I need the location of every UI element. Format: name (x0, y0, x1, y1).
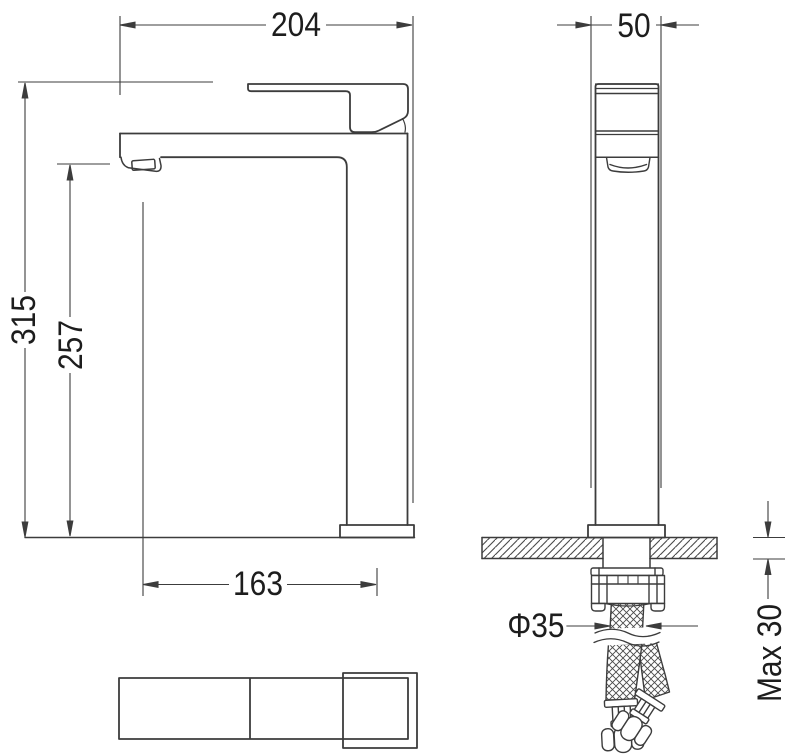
handle-top-outline (343, 673, 417, 748)
supply-hoses (594, 600, 670, 700)
drawing-geometry (0, 0, 800, 756)
body-side (596, 84, 659, 525)
dim-overall-width (120, 16, 413, 503)
hose-left-upper (610, 600, 644, 630)
side-view (482, 84, 717, 754)
handle-front (248, 84, 408, 132)
dim-hole-diameter-label: Φ35 (506, 609, 567, 643)
dim-overall-height-label: 315 (7, 293, 41, 346)
body-front (120, 134, 408, 526)
dim-spout-height-label: 257 (54, 318, 88, 371)
spout-aerator-front (121, 157, 161, 171)
dim-overall-width-label: 204 (269, 8, 322, 42)
dim-body-depth (557, 16, 699, 488)
mounting-nut (592, 576, 665, 612)
top-view (119, 673, 417, 748)
faucet-dimension-drawing: 204 50 315 257 163 Φ35 Max 30 (0, 0, 800, 756)
dim-max-thickness-label: Max 30 (753, 602, 787, 704)
dim-overall-height (18, 82, 213, 537)
base-flange-side (588, 525, 665, 538)
dim-max-thickness (753, 501, 785, 599)
spout-aerator-side (607, 158, 651, 173)
washer (591, 568, 663, 576)
hose-break (594, 627, 660, 646)
dim-spout-reach-label: 163 (231, 567, 284, 601)
mounting-deck (482, 538, 717, 559)
dim-body-depth-label: 50 (616, 9, 653, 43)
base-plate-front (340, 525, 414, 538)
front-view (25, 84, 415, 538)
shank (603, 538, 650, 569)
body-top-outline (119, 678, 408, 739)
